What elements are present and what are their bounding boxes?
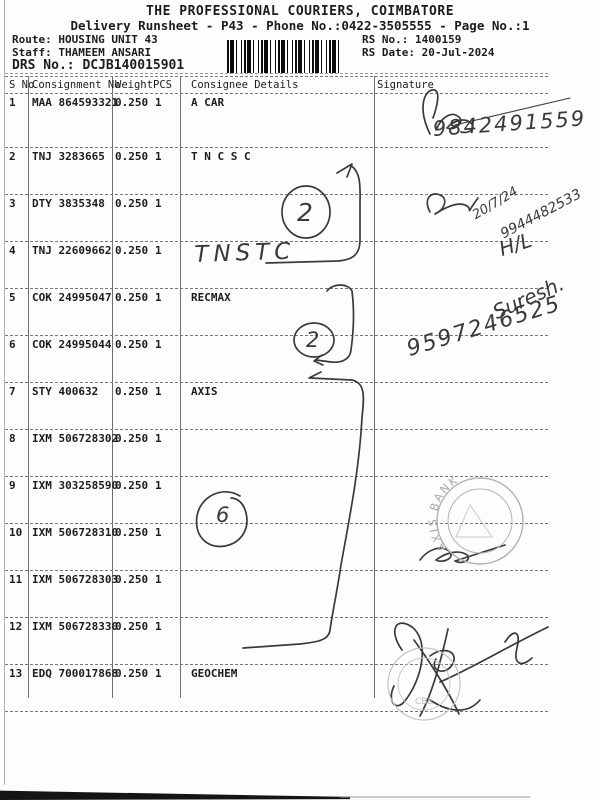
cell-weight: 0.250 bbox=[115, 244, 148, 257]
delivery-runsheet-document: THE PROFESSIONAL COURIERS, COIMBATORE De… bbox=[0, 0, 600, 800]
cell-sno: 11 bbox=[9, 573, 22, 586]
circled-count-a: 2 bbox=[297, 198, 313, 227]
cell-consignment: TNJ 22609662 bbox=[32, 244, 111, 257]
cell-consignment: IXM 506728303 bbox=[32, 573, 118, 586]
cell-consignment: IXM 506728310 bbox=[32, 526, 118, 539]
circled-count-c: 6 bbox=[216, 503, 229, 527]
cell-consignment: MAA 864593321 bbox=[32, 96, 118, 109]
consignment-table: S No Consignment No Weight PCS Consignee… bbox=[5, 76, 548, 698]
cell-consignment: EDQ 700017868 bbox=[32, 667, 118, 680]
rs-date-value: 20-Jul-2024 bbox=[422, 46, 495, 59]
col-header-pcs: PCS bbox=[153, 79, 172, 91]
cell-consignment: TNJ 3283665 bbox=[32, 150, 105, 163]
cell-consignee: A CAR bbox=[191, 96, 224, 109]
route-label: Route: bbox=[12, 33, 58, 46]
table-row: 3 DTY 3835348 0.250 1 bbox=[5, 195, 548, 242]
cell-weight: 0.250 bbox=[115, 526, 148, 539]
scan-artifact-bottom bbox=[0, 789, 350, 800]
cell-pcs: 1 bbox=[155, 150, 162, 163]
cell-weight: 0.250 bbox=[115, 150, 148, 163]
cell-weight: 0.250 bbox=[115, 479, 148, 492]
table-row: 12 IXM 506728330 0.250 1 bbox=[5, 618, 548, 665]
cell-sno: 1 bbox=[9, 96, 16, 109]
cell-pcs: 1 bbox=[155, 620, 162, 633]
cell-consignment: COK 24995047 bbox=[32, 291, 111, 304]
col-header-consignment: Consignment No bbox=[32, 79, 121, 91]
cell-weight: 0.250 bbox=[115, 667, 148, 680]
rs-no-value: 1400159 bbox=[415, 33, 461, 46]
table-row: 7 STY 400632 0.250 1 AXIS bbox=[5, 383, 548, 430]
cell-pcs: 1 bbox=[155, 526, 162, 539]
rs-date-label: RS Date: bbox=[362, 46, 422, 59]
cell-pcs: 1 bbox=[155, 291, 162, 304]
cell-pcs: 1 bbox=[155, 244, 162, 257]
drs-label: DRS No.: bbox=[12, 58, 82, 73]
cell-consignee: RECMAX bbox=[191, 291, 231, 304]
cell-weight: 0.250 bbox=[115, 573, 148, 586]
cell-pcs: 1 bbox=[155, 479, 162, 492]
cell-pcs: 1 bbox=[155, 96, 162, 109]
cell-sno: 4 bbox=[9, 244, 16, 257]
cell-sno: 2 bbox=[9, 150, 16, 163]
cell-sno: 6 bbox=[9, 338, 16, 351]
cell-weight: 0.250 bbox=[115, 338, 148, 351]
cell-sno: 9 bbox=[9, 479, 16, 492]
cell-pcs: 1 bbox=[155, 338, 162, 351]
cell-consignment: IXM 303258590 bbox=[32, 479, 118, 492]
table-row: 8 IXM 506728302 0.250 1 bbox=[5, 430, 548, 477]
cell-sno: 13 bbox=[9, 667, 22, 680]
cell-pcs: 1 bbox=[155, 197, 162, 210]
scan-artifact-bottom-tail bbox=[340, 796, 530, 798]
col-header-sno: S No bbox=[9, 79, 34, 91]
route-line: Route: HOUSING UNIT 43 bbox=[12, 33, 158, 46]
runsheet-subtitle: Delivery Runsheet - P43 - Phone No.:0422… bbox=[0, 18, 600, 33]
cell-consignee: AXIS bbox=[191, 385, 218, 398]
cell-consignment: IXM 506728302 bbox=[32, 432, 118, 445]
drs-value: DCJB140015901 bbox=[82, 58, 184, 73]
cell-weight: 0.250 bbox=[115, 620, 148, 633]
cell-pcs: 1 bbox=[155, 432, 162, 445]
cell-sno: 12 bbox=[9, 620, 22, 633]
cell-consignment: DTY 3835348 bbox=[32, 197, 105, 210]
company-title: THE PROFESSIONAL COURIERS, COIMBATORE bbox=[0, 4, 600, 19]
cell-consignment: COK 24995044 bbox=[32, 338, 111, 351]
cell-consignment: IXM 506728330 bbox=[32, 620, 118, 633]
cell-pcs: 1 bbox=[155, 667, 162, 680]
table-row: 11 IXM 506728303 0.250 1 bbox=[5, 571, 548, 618]
cell-sno: 8 bbox=[9, 432, 16, 445]
cell-consignment: STY 400632 bbox=[32, 385, 98, 398]
route-value: HOUSING UNIT 43 bbox=[58, 33, 157, 46]
table-body: 1 MAA 864593321 0.250 1 A CAR 2 TNJ 3283… bbox=[5, 94, 548, 712]
table-header-row: S No Consignment No Weight PCS Consignee… bbox=[5, 76, 548, 94]
table-row: 9 IXM 303258590 0.250 1 bbox=[5, 477, 548, 524]
cell-sno: 5 bbox=[9, 291, 16, 304]
cell-weight: 0.250 bbox=[115, 432, 148, 445]
table-row: 13 EDQ 700017868 0.250 1 GEOCHEM bbox=[5, 665, 548, 712]
drs-line: DRS No.: DCJB140015901 bbox=[12, 58, 184, 73]
cell-weight: 0.250 bbox=[115, 291, 148, 304]
cell-weight: 0.250 bbox=[115, 197, 148, 210]
handwritten-consignee-row4: TNSTC bbox=[194, 238, 296, 268]
drs-barcode bbox=[227, 40, 339, 73]
table-row: 10 IXM 506728310 0.250 1 bbox=[5, 524, 548, 571]
circled-count-b: 2 bbox=[306, 328, 319, 352]
rs-no-label: RS No.: bbox=[362, 33, 415, 46]
cell-pcs: 1 bbox=[155, 385, 162, 398]
cell-consignee: T N C S C bbox=[191, 150, 251, 163]
col-header-consignee: Consignee Details bbox=[191, 79, 298, 91]
cell-weight: 0.250 bbox=[115, 96, 148, 109]
cell-sno: 10 bbox=[9, 526, 22, 539]
cell-pcs: 1 bbox=[155, 573, 162, 586]
cell-sno: 7 bbox=[9, 385, 16, 398]
cell-consignee: GEOCHEM bbox=[191, 667, 237, 680]
col-header-weight: Weight bbox=[115, 79, 153, 91]
rs-no-line: RS No.: 1400159 bbox=[362, 33, 461, 46]
cell-weight: 0.250 bbox=[115, 385, 148, 398]
cell-sno: 3 bbox=[9, 197, 16, 210]
rs-date-line: RS Date: 20-Jul-2024 bbox=[362, 46, 494, 59]
col-header-signature: Signature bbox=[377, 79, 434, 91]
table-row: 2 TNJ 3283665 0.250 1 T N C S C bbox=[5, 148, 548, 195]
